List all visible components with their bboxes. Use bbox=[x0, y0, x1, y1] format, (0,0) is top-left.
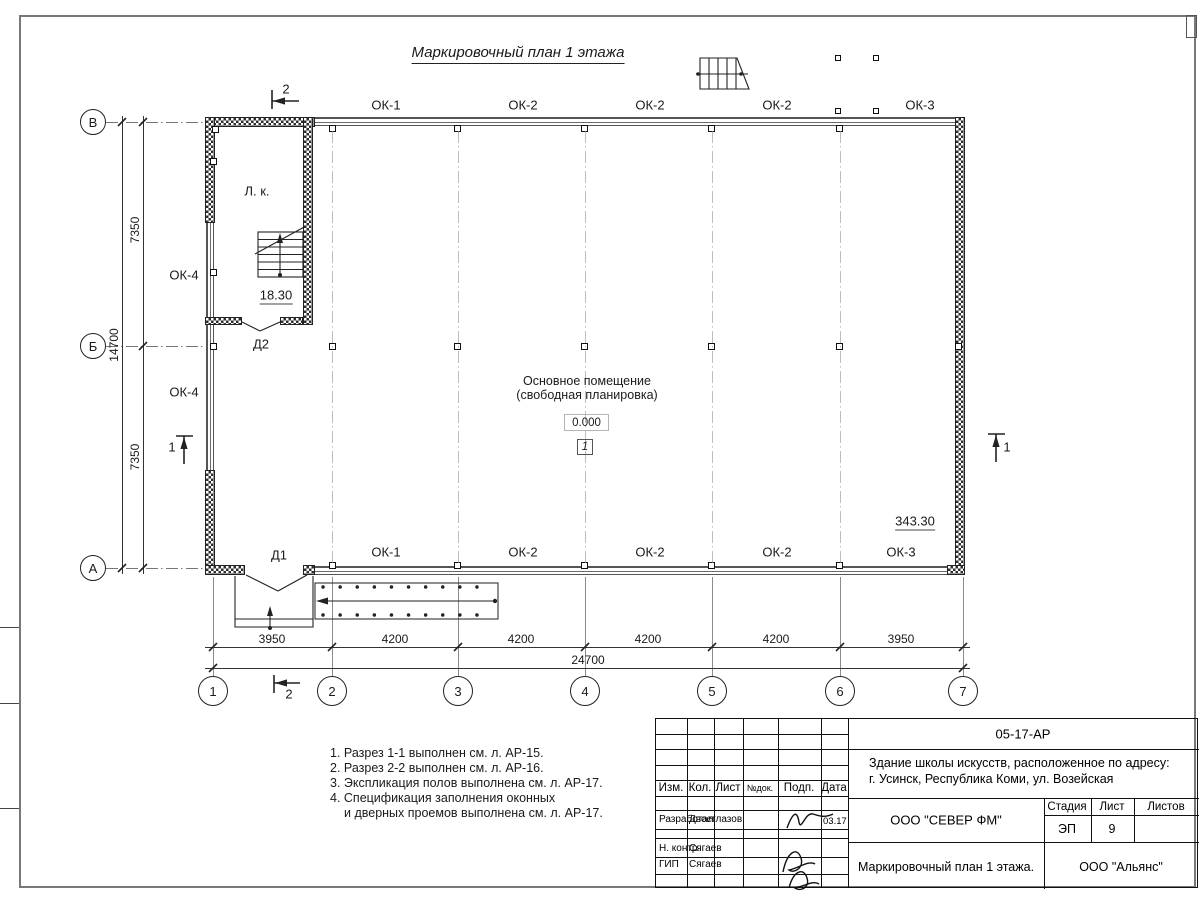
tb-company: ООО "СЕВЕР ФМ" bbox=[890, 813, 1002, 828]
axis-bubble-1: 1 bbox=[198, 676, 228, 706]
wall-hatch-bottom-right bbox=[947, 565, 965, 575]
tb-name-gip: Сягаев bbox=[689, 859, 722, 870]
axis-bubble-b: Б bbox=[80, 333, 106, 359]
dim-text: 4200 bbox=[508, 632, 535, 646]
wall-hatch-stairwell-bottom-right bbox=[280, 317, 303, 325]
binding-tick bbox=[0, 703, 19, 704]
wall-hatch-bottom-left bbox=[205, 565, 245, 575]
tb-col-kol: Кол. bbox=[689, 782, 712, 794]
column-marker bbox=[329, 562, 336, 569]
dim-text: 7350 bbox=[128, 444, 142, 471]
stairwell-area: 18.30 bbox=[260, 288, 293, 305]
tb-name-developed: Двоеглазов bbox=[689, 814, 742, 825]
corner-stamp-box bbox=[1186, 15, 1197, 38]
binding-tick bbox=[0, 808, 19, 809]
dim-text: 3950 bbox=[259, 632, 286, 646]
window-mark: ОК-2 bbox=[508, 98, 537, 113]
column-marker bbox=[210, 343, 217, 350]
dim-text: 4200 bbox=[382, 632, 409, 646]
extension-line bbox=[963, 577, 964, 676]
window-mark: ОК-1 bbox=[371, 98, 400, 113]
note-line: 4. Спецификация заполнения оконных bbox=[330, 791, 555, 805]
elevation-box: 0.000 bbox=[564, 414, 609, 431]
section-label-1-right: 1 bbox=[1003, 440, 1010, 455]
axis-bubble-v: В bbox=[80, 109, 106, 135]
dim-line-left-total bbox=[122, 116, 123, 574]
axis-bubble-3: 3 bbox=[443, 676, 473, 706]
porch-column-marker bbox=[835, 55, 841, 61]
section-label-1-left: 1 bbox=[168, 440, 175, 455]
column-marker bbox=[708, 562, 715, 569]
main-room-name2: (свободная планировка) bbox=[516, 388, 657, 402]
tb-date-developed: 03.17 bbox=[823, 816, 847, 827]
axis-line-6 bbox=[840, 131, 841, 563]
wall-hatch-stairwell-bottom-left bbox=[205, 317, 242, 325]
room-number: 1 bbox=[582, 441, 588, 453]
column-marker bbox=[955, 343, 962, 350]
axis-line-b bbox=[106, 346, 206, 347]
extension-line bbox=[213, 577, 214, 676]
main-room-area: 343.30 bbox=[895, 514, 935, 531]
window-mark: ОК-3 bbox=[886, 545, 915, 560]
tb-col-list: Лист bbox=[716, 782, 741, 794]
column-marker bbox=[454, 562, 461, 569]
wall-hatch-stair-top bbox=[205, 117, 315, 127]
elevation-value: 0.000 bbox=[572, 417, 601, 429]
door-mark-d1: Д1 bbox=[271, 548, 287, 563]
tb-col-izm: Изм. bbox=[659, 782, 684, 794]
tb-doc-code: 05-17-АР bbox=[996, 727, 1051, 742]
wall-hatch-left-lower bbox=[205, 470, 215, 575]
extension-line bbox=[840, 577, 841, 676]
axis-bubble-2: 2 bbox=[317, 676, 347, 706]
porch-column-marker bbox=[873, 108, 879, 114]
dim-line-bottom bbox=[205, 647, 970, 648]
porch-column-marker bbox=[873, 55, 879, 61]
column-marker bbox=[212, 126, 219, 133]
tb-drawing-title: Маркировочный план 1 этажа. bbox=[858, 860, 1034, 874]
axis-line-4 bbox=[585, 131, 586, 563]
window-mark: ОК-4 bbox=[169, 385, 198, 400]
column-marker bbox=[210, 158, 217, 165]
wall-hatch-bottom-door-pier bbox=[303, 565, 315, 575]
column-marker bbox=[210, 269, 217, 276]
porch-column-marker bbox=[835, 108, 841, 114]
note-line: 1. Разрез 1-1 выполнен см. л. АР-15. bbox=[330, 746, 544, 760]
tb-name-ncontr: Сягаев bbox=[689, 843, 722, 854]
tb-firm: ООО "Альянс" bbox=[1079, 860, 1163, 874]
binding-tick bbox=[0, 627, 19, 628]
axis-line-2 bbox=[332, 131, 333, 563]
axis-bubble-a: А bbox=[80, 555, 106, 581]
window-mark: ОК-3 bbox=[905, 98, 934, 113]
tb-col-podp: Подп. bbox=[784, 782, 815, 794]
dim-text: 7350 bbox=[128, 217, 142, 244]
tb-project-line1: Здание школы искусств, расположенное по … bbox=[869, 756, 1170, 770]
stairwell-label: Л. к. bbox=[244, 184, 269, 199]
axis-line-3 bbox=[458, 131, 459, 563]
tb-col-ndok: №док. bbox=[747, 783, 773, 793]
extension-line bbox=[712, 577, 713, 676]
dim-line-left bbox=[143, 116, 144, 574]
tb-sheet-label: Лист bbox=[1100, 801, 1125, 813]
extension-line bbox=[332, 577, 333, 676]
axis-bubble-4: 4 bbox=[570, 676, 600, 706]
axis-bubble-6: 6 bbox=[825, 676, 855, 706]
tb-role-gip: ГИП bbox=[659, 859, 679, 870]
note-line: 2. Разрез 2-2 выполнен см. л. АР-16. bbox=[330, 761, 544, 775]
section-label-2-bottom: 2 bbox=[285, 687, 292, 702]
axis-line-v bbox=[106, 122, 206, 123]
door-mark-d2: Д2 bbox=[253, 337, 269, 352]
window-mark: ОК-2 bbox=[635, 545, 664, 560]
column-marker bbox=[836, 562, 843, 569]
dim-line-bottom-total bbox=[205, 668, 970, 669]
axis-bubble-7: 7 bbox=[948, 676, 978, 706]
tb-project-line2: г. Усинск, Республика Коми, ул. Возейска… bbox=[869, 772, 1113, 786]
tb-sheets-label: Листов bbox=[1147, 801, 1184, 813]
wall-window-band-bottom bbox=[315, 566, 947, 575]
note-line: 3. Экспликация полов выполнена см. л. АР… bbox=[330, 776, 603, 790]
window-mark: ОК-1 bbox=[371, 545, 400, 560]
wall-window-band-top bbox=[313, 117, 955, 126]
tb-col-data: Дата bbox=[821, 782, 846, 794]
axis-bubble-5: 5 bbox=[697, 676, 727, 706]
tb-stage-value: ЭП bbox=[1058, 822, 1076, 836]
axis-line-5 bbox=[712, 131, 713, 563]
column-marker bbox=[581, 562, 588, 569]
section-label-2-top: 2 bbox=[282, 82, 289, 97]
room-number-box: 1 bbox=[577, 439, 593, 455]
drawing-sheet: Маркировочный план 1 этажа bbox=[0, 0, 1200, 900]
dim-text: 4200 bbox=[635, 632, 662, 646]
tb-sheet-value: 9 bbox=[1109, 822, 1116, 836]
wall-hatch-stairwell-right bbox=[303, 117, 313, 325]
window-mark: ОК-2 bbox=[762, 98, 791, 113]
dim-text: 4200 bbox=[763, 632, 790, 646]
dim-text-total: 24700 bbox=[571, 653, 604, 667]
window-mark: ОК-2 bbox=[762, 545, 791, 560]
dim-text: 3950 bbox=[888, 632, 915, 646]
dim-text: 14700 bbox=[107, 328, 121, 361]
note-line: и дверных проемов выполнена см. л. АР-17… bbox=[344, 806, 603, 820]
extension-line bbox=[458, 577, 459, 676]
window-mark: ОК-2 bbox=[508, 545, 537, 560]
window-mark: ОК-4 bbox=[169, 268, 198, 283]
tb-stage-label: Стадия bbox=[1047, 801, 1086, 813]
title-block: Изм. Кол. Лист №док. Подп. Дата Разработ… bbox=[655, 718, 1198, 888]
page-title: Маркировочный план 1 этажа bbox=[412, 44, 625, 64]
main-room-name: Основное помещение bbox=[523, 374, 651, 388]
window-mark: ОК-2 bbox=[635, 98, 664, 113]
axis-line-a bbox=[106, 568, 206, 569]
